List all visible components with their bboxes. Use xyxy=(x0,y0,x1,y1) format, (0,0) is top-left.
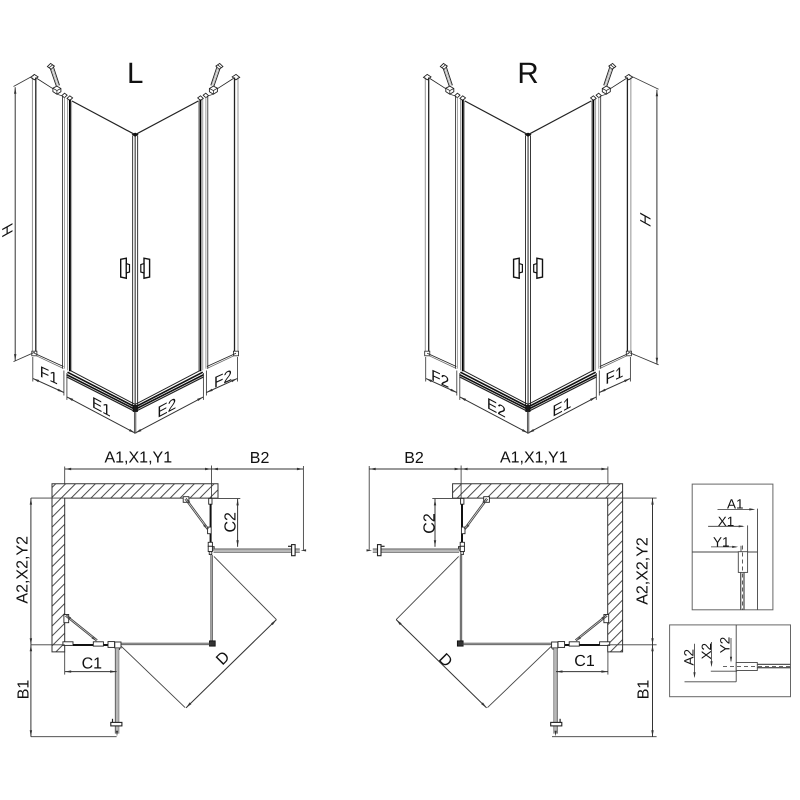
svg-text:C2: C2 xyxy=(422,513,439,534)
svg-text:B1: B1 xyxy=(636,680,653,700)
svg-text:B2: B2 xyxy=(404,450,424,467)
svg-text:R: R xyxy=(517,57,538,90)
svg-text:C1: C1 xyxy=(574,653,595,670)
svg-text:B2: B2 xyxy=(250,450,270,467)
svg-text:C2: C2 xyxy=(223,512,240,533)
svg-text:X1: X1 xyxy=(718,514,735,529)
svg-text:A2,X2,Y2: A2,X2,Y2 xyxy=(15,536,32,604)
svg-text:B1: B1 xyxy=(16,680,33,700)
svg-text:Y2: Y2 xyxy=(718,637,733,654)
svg-text:L: L xyxy=(127,57,143,90)
svg-text:A1,X1,Y1: A1,X1,Y1 xyxy=(500,450,568,467)
svg-text:A1,X1,Y1: A1,X1,Y1 xyxy=(104,450,172,467)
svg-text:A2,X2,Y2: A2,X2,Y2 xyxy=(635,537,652,605)
svg-text:C1: C1 xyxy=(82,655,103,672)
